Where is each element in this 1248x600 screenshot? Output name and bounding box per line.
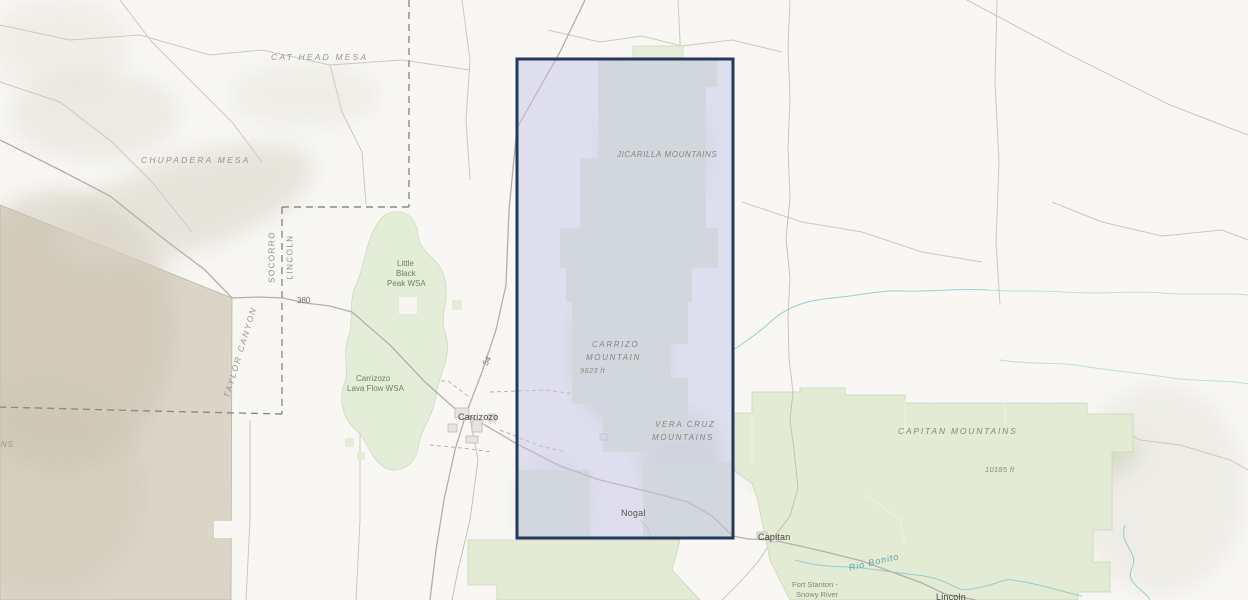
map-viewport[interactable]: CAT HEAD MESA CHUPADERA MESA TAYLOR CANY… (0, 0, 1248, 600)
map-canvas[interactable] (0, 0, 1248, 600)
south-forest-polygon (468, 540, 700, 600)
selection-rectangle[interactable] (517, 59, 733, 538)
capitan-forest-polygon (733, 388, 1133, 600)
